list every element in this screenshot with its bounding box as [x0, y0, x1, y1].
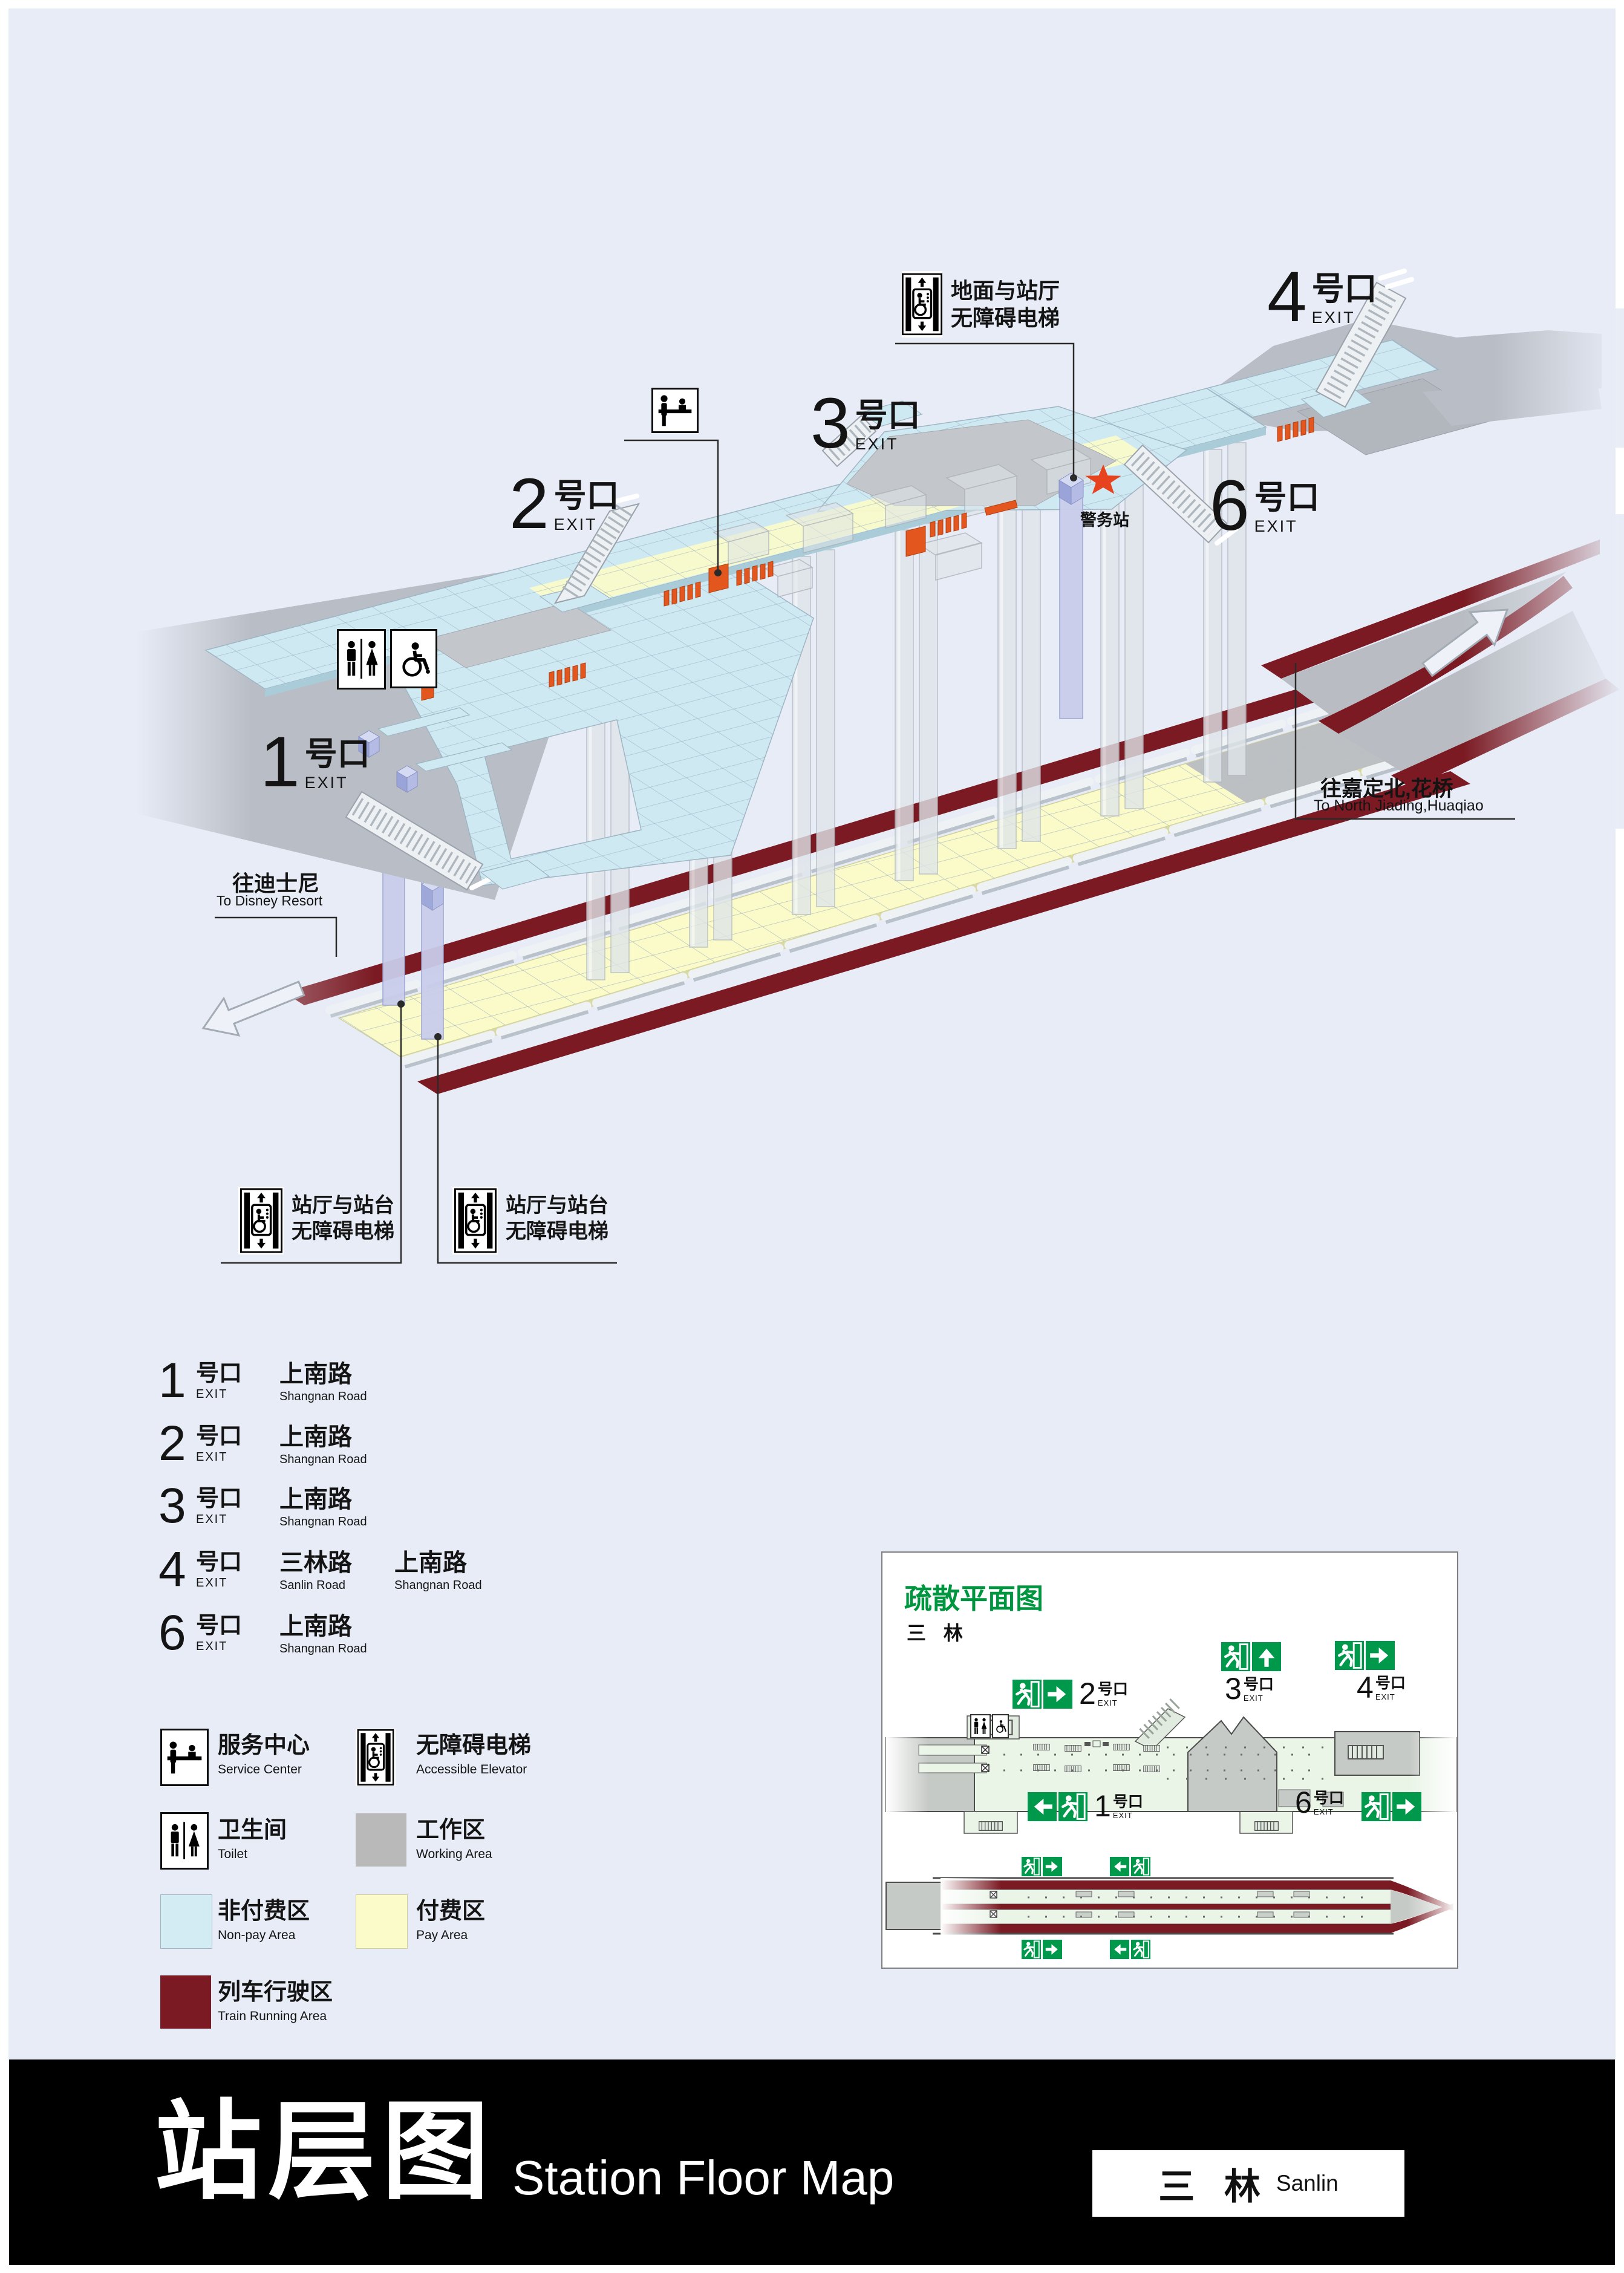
- running-man-icon: [1361, 1792, 1391, 1821]
- arrow-up-icon: [1252, 1642, 1281, 1671]
- inset-exit-1-label: 1 号口 EXIT: [1094, 1793, 1143, 1820]
- exit-list-row: 2 号口 EXIT 上南路 Shangnan Road: [158, 1423, 367, 1467]
- exit-suffix: 号口: [305, 738, 370, 771]
- working-area-swatch: [356, 1813, 406, 1867]
- iso-exit-2-label: 2 号口 EXIT: [509, 475, 619, 534]
- platform-exit-signs: [1022, 1857, 1062, 1876]
- inset-exit-4-signs: [1335, 1641, 1395, 1670]
- evacuation-plan-inset: 疏散平面图 三 林 2 号口 EXIT 3 号口 EXIT 4 号口 EXIT: [881, 1551, 1458, 1969]
- running-man-icon: [1131, 1940, 1150, 1959]
- to-disney-label-en: To Disney Resort: [217, 893, 322, 909]
- exit-number: 6: [1210, 477, 1250, 535]
- to-jiading-label-en: To North Jiading,Huaqiao: [1314, 797, 1484, 815]
- ground-elevator-label: 地面与站厅 无障碍电梯: [951, 277, 1060, 331]
- station-name-box: 三 林 Sanlin: [1092, 2150, 1404, 2217]
- arrow-left-icon: [1028, 1792, 1057, 1821]
- accessible-elevator-icon: [356, 1729, 396, 1786]
- inset-exit-3-label: 3 号口 EXIT: [1225, 1676, 1274, 1703]
- iso-exit-3-label: 3 号口 EXIT: [810, 394, 921, 454]
- non-pay-area-swatch: [160, 1894, 212, 1949]
- arrow-right-icon: [1392, 1792, 1421, 1821]
- arrow-left-icon: [1110, 1857, 1129, 1876]
- arrow-left-icon: [1110, 1940, 1129, 1959]
- exit-suffix: 号口: [855, 399, 921, 432]
- train-running-area-swatch: [160, 1975, 211, 2029]
- inset-exit-3-signs: [1221, 1642, 1281, 1671]
- station-floor-map-page: 1 号口 EXIT 2 号口 EXIT 3 号口 EXIT 4 号口 EXIT …: [0, 0, 1624, 2273]
- exit-suffix: 号口: [554, 480, 619, 512]
- police-station-label: 警务站: [1080, 507, 1129, 530]
- exit-list-row: 4 号口 EXIT 三林路 Sanlin Road 上南路 Shangnan R…: [158, 1548, 482, 1593]
- wheelchair-accessible-icon: [390, 629, 437, 688]
- running-man-icon: [1022, 1857, 1041, 1876]
- exit-word: EXIT: [1254, 517, 1320, 536]
- accessible-elevator-icon: [452, 1187, 498, 1254]
- arrow-right-icon: [1043, 1680, 1072, 1709]
- accessible-elevator-icon: [902, 271, 942, 338]
- platform-elevator-label-left: 站厅与站台 无障碍电梯: [292, 1193, 394, 1244]
- page-title-zh: 站层图: [154, 2098, 495, 2206]
- exit-number: 3: [810, 394, 850, 453]
- legend-train-running-area: 列车行驶区: [218, 1980, 333, 2006]
- running-man-icon: [1022, 1940, 1041, 1959]
- exit-list-row: 3 号口 EXIT 上南路 Shangnan Road: [158, 1485, 367, 1529]
- iso-exit-4-label: 4 号口 EXIT: [1267, 268, 1377, 327]
- legend-pay-area: 付费区: [416, 1899, 485, 1925]
- footer-bar: 站层图 Station Floor Map 三 林 Sanlin: [9, 2059, 1615, 2265]
- running-man-icon: [1131, 1857, 1150, 1876]
- station-name-en: Sanlin: [1276, 2171, 1339, 2196]
- exit-word: EXIT: [305, 774, 370, 792]
- exit-number: 2: [509, 475, 549, 533]
- running-man-icon: [1013, 1680, 1042, 1709]
- exit-number: 4: [1267, 268, 1307, 327]
- inset-exit-2-signs: [1013, 1680, 1072, 1709]
- toilet-icon: [337, 629, 386, 690]
- ground-elevator-shaft: [1059, 473, 1083, 719]
- iso-exit-6-label: 6 号口 EXIT: [1210, 477, 1320, 536]
- inset-title: 疏散平面图: [904, 1577, 1043, 1617]
- platform-exit-signs: [1110, 1940, 1150, 1959]
- inset-exit-4-label: 4 号口 EXIT: [1357, 1675, 1406, 1701]
- inset-exit-1-signs: [1028, 1792, 1088, 1821]
- exit-list-row: 6 号口 EXIT 上南路 Shangnan Road: [158, 1612, 367, 1656]
- exit-list-row: 1 号口 EXIT 上南路 Shangnan Road: [158, 1360, 367, 1404]
- legend-non-pay-area: 非付费区: [218, 1899, 310, 1925]
- inset-exit-2-label: 2 号口 EXIT: [1079, 1681, 1128, 1707]
- running-man-icon: [1335, 1641, 1364, 1670]
- iso-exit-1-label: 1 号口 EXIT: [260, 733, 370, 792]
- exit-word: EXIT: [1312, 308, 1377, 327]
- platform-exit-signs: [1022, 1940, 1062, 1959]
- arrow-right-icon: [1043, 1940, 1062, 1959]
- legend-service-center: 服务中心: [218, 1733, 310, 1759]
- legend-working-area: 工作区: [416, 1818, 492, 1844]
- running-man-icon: [1221, 1642, 1250, 1671]
- accessible-elevator-icon: [238, 1187, 284, 1254]
- legend-toilet: 卫生间: [218, 1818, 287, 1844]
- inset-subtitle: 三 林: [907, 1618, 969, 1646]
- platform-exit-signs: [1110, 1857, 1150, 1876]
- running-man-icon: [1058, 1792, 1088, 1821]
- pay-area-swatch: [356, 1894, 408, 1949]
- station-name-zh: 三 林: [1158, 2157, 1270, 2210]
- exit-number: 1: [260, 733, 300, 792]
- platform-elevator-label-right: 站厅与站台 无障碍电梯: [506, 1193, 608, 1244]
- inset-exit-6-label: 6 号口 EXIT: [1295, 1790, 1344, 1816]
- toilet-icon: [160, 1812, 209, 1870]
- exit-word: EXIT: [855, 435, 921, 454]
- legend-accessible-elevator: 无障碍电梯: [416, 1733, 531, 1759]
- exit-word: EXIT: [554, 515, 619, 534]
- inset-exit-6-signs: [1361, 1792, 1421, 1821]
- service-center-icon: [160, 1729, 209, 1786]
- exit-suffix: 号口: [1254, 481, 1320, 514]
- service-center-icon: [651, 388, 699, 433]
- page-title-en: Station Floor Map: [512, 2154, 894, 2202]
- exit-suffix: 号口: [1312, 273, 1377, 305]
- arrow-right-icon: [1043, 1857, 1062, 1876]
- arrow-right-icon: [1366, 1641, 1395, 1670]
